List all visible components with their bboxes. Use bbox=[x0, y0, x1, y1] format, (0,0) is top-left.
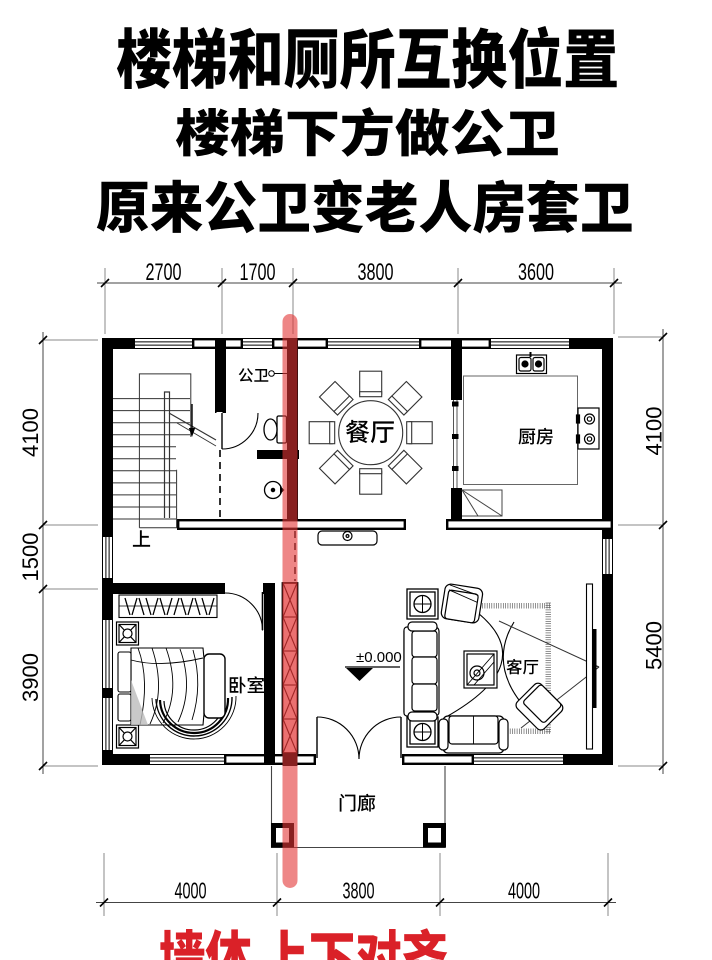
svg-text:±0.000: ±0.000 bbox=[356, 649, 402, 666]
svg-text:4100: 4100 bbox=[642, 407, 667, 456]
svg-text:4000: 4000 bbox=[508, 879, 540, 904]
svg-text:3800: 3800 bbox=[357, 259, 393, 286]
svg-text:3800: 3800 bbox=[342, 879, 374, 904]
svg-text:5400: 5400 bbox=[642, 621, 667, 670]
svg-text:1500: 1500 bbox=[18, 533, 43, 582]
svg-text:4100: 4100 bbox=[18, 408, 43, 457]
svg-text:3900: 3900 bbox=[18, 653, 43, 702]
svg-text:2700: 2700 bbox=[145, 259, 181, 286]
svg-text:1700: 1700 bbox=[239, 259, 275, 286]
svg-text:4000: 4000 bbox=[174, 879, 206, 904]
svg-text:3600: 3600 bbox=[518, 259, 554, 286]
